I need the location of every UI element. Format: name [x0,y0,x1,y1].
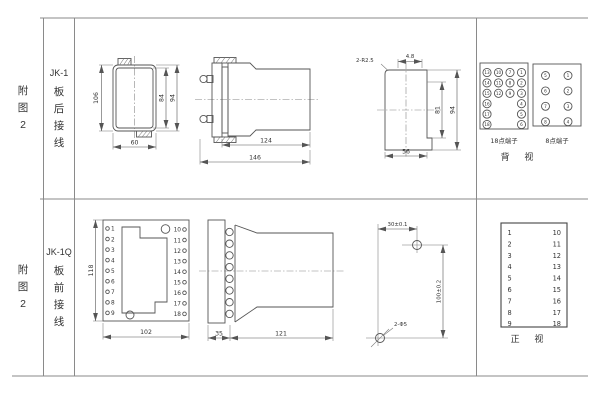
list-number-left: 7 [508,297,512,305]
dim-118: 118 [88,265,95,277]
terminal-dot [106,290,110,294]
terminal-bump [226,310,233,317]
dim-35: 35 [215,331,223,338]
terminal-number: 2 [567,89,570,94]
wiring-char: 线 [54,314,65,331]
terminal-number: 4 [111,258,115,264]
terminal-dot [183,291,187,295]
terminal-number: 2 [111,237,115,243]
dim-124: 124 [260,138,272,145]
list-number-left: 6 [508,286,512,294]
fig-char: 附 [18,262,29,279]
terminal-dot [183,270,187,274]
jk1q-side-view: 35 121 [199,220,345,341]
row1-model-label: JK-1 板 后 接 线 [43,18,75,199]
terminal-hatch-top [118,59,131,66]
terminal-number: 5 [544,73,547,78]
terminal-dot [183,302,187,306]
jk1q-terminal-list: 123456789101112131415161718 正 视 [501,223,567,345]
terminal-number: 7 [544,104,547,109]
row2-figure-label: 附 图 2 [6,199,40,376]
terminal-dot [183,249,187,253]
dim-84: 84 [159,94,166,102]
terminal-hatch-bottom [137,131,152,137]
dim-102: 102 [140,329,152,336]
wiring-char: 线 [54,135,65,152]
jk1-terminal-diagrams: 131415161718101112789123456 18点端子 567812… [480,63,581,163]
wiring-char: 接 [54,297,65,314]
terminal-block-18-label: 18点端子 [490,136,518,145]
drawing-canvas: 106 84 94 60 [0,0,600,400]
list-number-right: 17 [553,309,561,317]
dim-94: 94 [170,94,177,102]
plate-terminals: 123456789101112131415161718 [106,227,187,318]
terminal-bump [226,228,233,235]
terminal-number: 4 [520,101,523,106]
mount-tab-bottom [214,137,236,143]
terminal-block-8-label: 8点端子 [545,136,569,145]
list-number-right: 15 [553,286,561,294]
list-number-left: 5 [508,275,512,283]
terminal-dot [183,312,187,316]
terminal-number: 6 [544,89,547,94]
terminal-number: 18 [484,122,490,127]
dim-121: 121 [275,331,287,338]
dim-56: 56 [402,149,410,156]
terminal-dot [183,228,187,232]
terminal-bump [226,299,233,306]
list-number-right: 18 [553,320,561,328]
fig-char: 2 [20,117,26,134]
terminal-number: 7 [111,290,115,296]
terminal-number: 1 [567,73,570,78]
terminal-dot [183,238,187,242]
terminal-number: 12 [496,91,502,96]
list-number-right: 11 [553,240,561,248]
terminal-number: 13 [174,259,182,265]
terminal-number: 16 [174,291,182,297]
mount-tab-top [214,58,236,64]
wiring-char: 前 [54,280,65,297]
terminal-number: 7 [509,70,512,75]
wiring-char: 板 [54,84,65,101]
row2-model-label: JK-1Q 板 前 接 线 [43,199,75,376]
terminal-number: 17 [174,302,182,308]
terminal-number: 12 [174,249,182,255]
list-number-left: 9 [508,320,512,328]
jk1-cutout-view: 2-R2.5 4.8 81 94 56 [356,54,461,159]
terminal-number: 8 [111,301,115,307]
terminal-number: 11 [174,238,182,244]
rear-view-label: 背 视 [501,151,540,163]
drawing-sheet: 106 84 94 60 [0,0,600,400]
list-number-right: 16 [553,297,561,305]
terminal-number: 1 [111,227,115,233]
terminal-number: 9 [111,311,115,317]
dim-60: 60 [131,140,139,147]
model-name: JK-1 [50,65,69,82]
terminal-number: 13 [484,70,490,75]
terminal-number: 3 [111,248,115,254]
terminal-bump [226,263,233,270]
terminal-bump [226,275,233,282]
label-corner-radius: 2-R2.5 [356,58,374,64]
terminal-dot [106,269,110,273]
terminal-block-8 [533,64,581,126]
jk1q-drill-plan: 30±0.1 2-Φ5 100±0.2 [366,222,448,347]
terminal-screw-top [200,75,213,82]
wiring-char: 后 [54,101,65,118]
terminal-number: 9 [509,91,512,96]
list-number-left: 3 [508,252,512,260]
terminal-number: 5 [520,112,523,117]
jk1q-plate-view: 123456789101112131415161718 118 102 [88,220,189,340]
terminal-number: 10 [174,228,182,234]
terminal-dot [183,259,187,263]
terminals-8-grid: 56781234 [542,72,573,126]
terminal-number: 3 [520,91,523,96]
mount-hole-bottom [126,311,134,319]
dim-94-cutout: 94 [450,106,457,114]
mount-hole-top [161,225,170,234]
jk1-front-view: 106 84 94 60 [93,56,180,150]
fig-char: 图 [18,279,29,296]
terminal-number: 2 [520,81,523,86]
list-number-right: 12 [553,252,561,260]
terminal-dot [106,237,110,241]
list-number-left: 8 [508,309,512,317]
terminal-bumps [226,228,233,317]
terminal-screw-bottom [200,115,213,122]
terminal-dot [106,311,110,315]
fig-char: 图 [18,100,29,117]
table-grid [12,18,588,376]
list-number-right: 10 [553,229,561,237]
dim-30: 30±0.1 [388,222,408,228]
dim-100: 100±0.2 [437,280,443,303]
terminal-number: 14 [174,270,182,276]
terminal-list-numbers: 123456789101112131415161718 [508,229,562,328]
list-number-right: 14 [553,275,561,283]
jk1-side-view: 124 146 [195,58,318,165]
terminal-number: 17 [484,112,490,117]
front-view-label: 正 视 [511,333,550,345]
terminal-number: 6 [111,279,115,285]
terminal-number: 15 [174,280,182,286]
terminal-number: 16 [484,101,490,106]
dim-4_8: 4.8 [406,54,415,60]
list-number-right: 13 [553,263,561,271]
terminal-number: 15 [484,91,490,96]
terminal-dot [106,248,110,252]
list-number-left: 4 [508,263,512,271]
row1-figure-label: 附 图 2 [6,18,40,199]
terminal-number: 10 [496,70,502,75]
list-number-left: 2 [508,240,512,248]
list-number-left: 1 [508,229,512,237]
terminal-number: 11 [496,81,502,86]
label-holes: 2-Φ5 [394,322,407,328]
terminal-dot [183,280,187,284]
fig-char: 2 [20,296,26,313]
fig-char: 附 [18,83,29,100]
model-name: JK-1Q [46,244,72,261]
terminal-bump [226,287,233,294]
terminal-dot [106,301,110,305]
terminal-number: 1 [520,70,523,75]
dim-146: 146 [249,155,261,162]
dim-81: 81 [435,106,442,114]
terminal-number: 3 [567,104,570,109]
terminal-dot [106,279,110,283]
terminal-dot [106,258,110,262]
terminal-number: 5 [111,269,115,275]
terminal-number: 4 [567,119,570,124]
wiring-char: 板 [54,263,65,280]
terminal-number: 6 [520,122,523,127]
terminal-dot [106,227,110,231]
terminal-bump [226,252,233,259]
terminal-number: 8 [509,81,512,86]
terminal-bump [226,240,233,247]
terminal-number: 14 [484,81,490,86]
terminal-number: 8 [544,119,547,124]
terminals-18-grid: 131415161718101112789123456 [483,68,526,128]
wiring-char: 接 [54,118,65,135]
dim-106: 106 [93,92,100,104]
terminal-number: 18 [174,312,182,318]
